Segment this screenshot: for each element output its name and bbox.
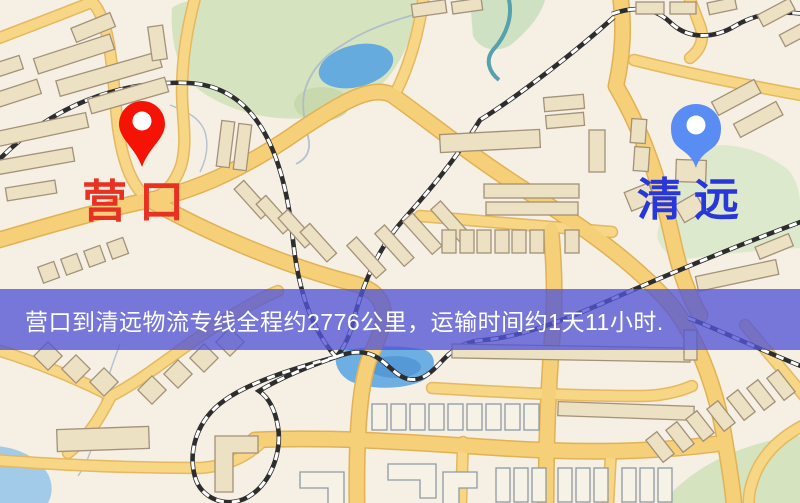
map-canvas: 营口 清远 营口到清远物流专线全程约2776公里，运输时间约1天11小时. (0, 0, 800, 503)
route-info-banner: 营口到清远物流专线全程约2776公里，运输时间约1天11小时. (0, 289, 800, 350)
destination-label: 清远 (637, 177, 751, 222)
map-graphic (0, 0, 800, 503)
origin-label: 营口 (82, 179, 196, 224)
route-info-text: 营口到清远物流专线全程约2776公里，运输时间约1天11小时. (25, 303, 664, 337)
